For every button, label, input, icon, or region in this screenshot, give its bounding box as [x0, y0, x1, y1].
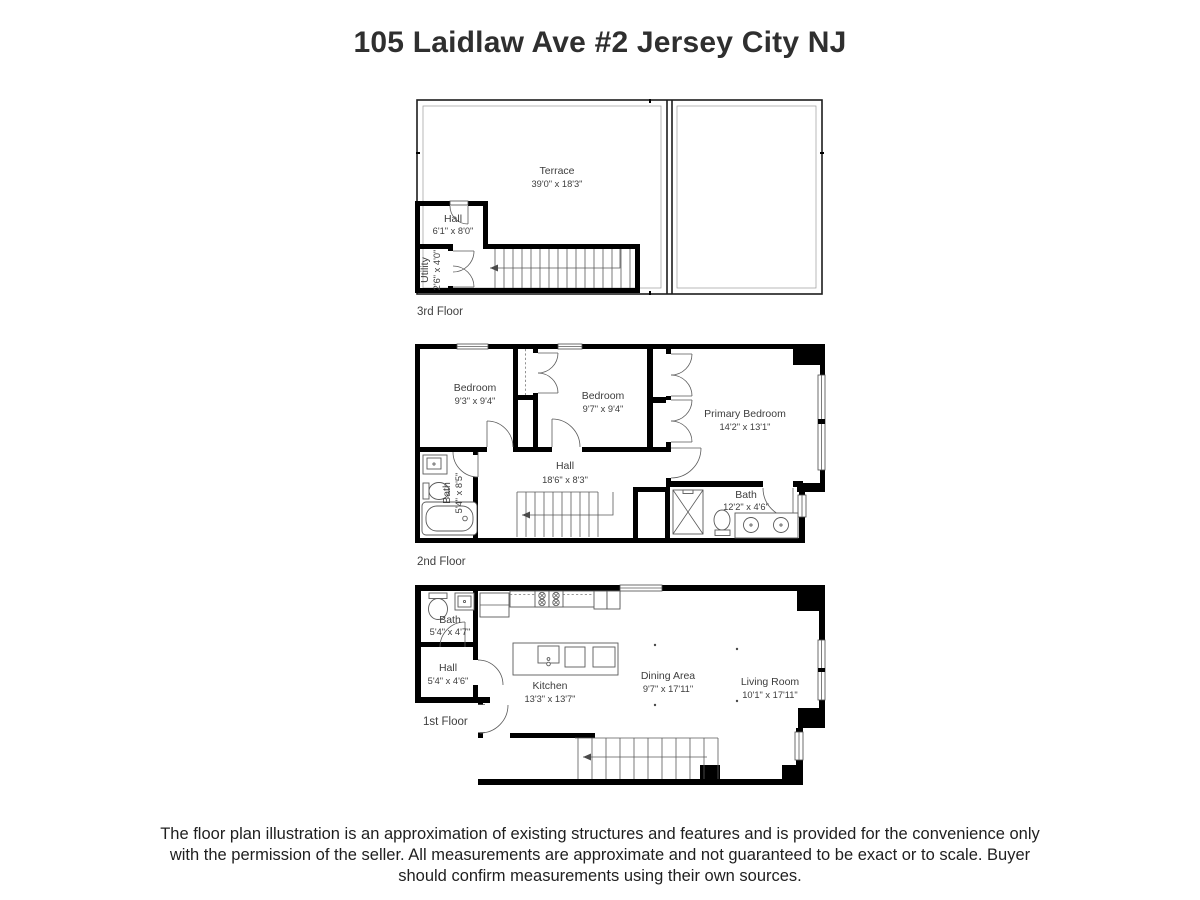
room-dims-bedroom-left: 9'3" x 9'4": [455, 396, 496, 406]
room-label-bath-1st: Bath: [439, 614, 461, 626]
kitchen-counter: [480, 591, 620, 617]
stairs: [517, 492, 613, 537]
room-label-terrace: Terrace: [539, 165, 574, 177]
floor-caption-2nd: 2nd Floor: [417, 556, 466, 568]
room-dims-dining: 9'7" x 17'11": [643, 684, 693, 694]
floor-plan-1st: Bath 5'4" x 4'7" Hall 5'4" x 4'6" Kitche…: [415, 585, 825, 785]
floor-caption-3rd: 3rd Floor: [417, 306, 463, 318]
room-label-bath-left: Bath: [441, 482, 453, 504]
floor-caption-1st: 1st Floor: [423, 716, 468, 728]
floor-plan-3rd: Terrace 39'0" x 18'3" Hall 6'1" x 8'0" U…: [415, 98, 825, 300]
floor-plan-2nd: Bedroom 9'3" x 9'4" Bedroom 9'7" x 9'4" …: [415, 344, 825, 546]
terrace-door-frame: [450, 201, 468, 205]
floor-plan-page: 105 Laidlaw Ave #2 Jersey City NJ: [0, 0, 1200, 900]
kitchen-island: [513, 643, 618, 675]
room-dims-kitchen: 13'3" x 13'7": [525, 694, 576, 704]
room-dims-hall-1st: 5'4" x 4'6": [428, 676, 469, 686]
stairs: [575, 738, 718, 779]
room-label-utility: Utility: [419, 256, 431, 282]
page-title: 105 Laidlaw Ave #2 Jersey City NJ: [0, 26, 1200, 60]
room-dims-living: 10'1" x 17'11": [742, 690, 797, 700]
stairs: [490, 249, 630, 288]
room-dims-primary-bedroom: 14'2" x 13'1": [720, 422, 771, 432]
room-label-kitchen: Kitchen: [532, 680, 567, 692]
room-label-bath-right: Bath: [735, 489, 757, 501]
room-label-dining: Dining Area: [641, 670, 695, 682]
room-dims-bath-left: 5'4" x 8'5": [454, 473, 464, 514]
room-dims-bath-1st: 5'4" x 4'7": [430, 627, 471, 637]
shower: [673, 490, 703, 534]
room-label-living: Living Room: [741, 676, 800, 688]
room-dims-hall-2nd: 18'6" x 8'3": [542, 475, 588, 485]
room-dims-bath-right: 12'2" x 4'6": [723, 502, 769, 512]
room-dims-bedroom-mid: 9'7" x 9'4": [583, 404, 624, 414]
room-label-hall-2nd: Hall: [556, 460, 574, 472]
room-label-hall-1st: Hall: [439, 662, 457, 674]
room-label-hall-3rd: Hall: [444, 213, 462, 225]
room-label-primary-bedroom: Primary Bedroom: [704, 408, 786, 420]
room-label-bedroom-mid: Bedroom: [582, 390, 625, 402]
room-dims-terrace: 39'0" x 18'3": [532, 179, 583, 189]
bath-fixtures-right: [714, 510, 798, 538]
room-dims-utility: 2'6" x 4'0": [432, 250, 442, 291]
disclaimer-text: The floor plan illustration is an approx…: [160, 824, 1040, 886]
room-dims-hall-3rd: 6'1" x 8'0": [433, 226, 474, 236]
room-label-bedroom-left: Bedroom: [454, 382, 497, 394]
